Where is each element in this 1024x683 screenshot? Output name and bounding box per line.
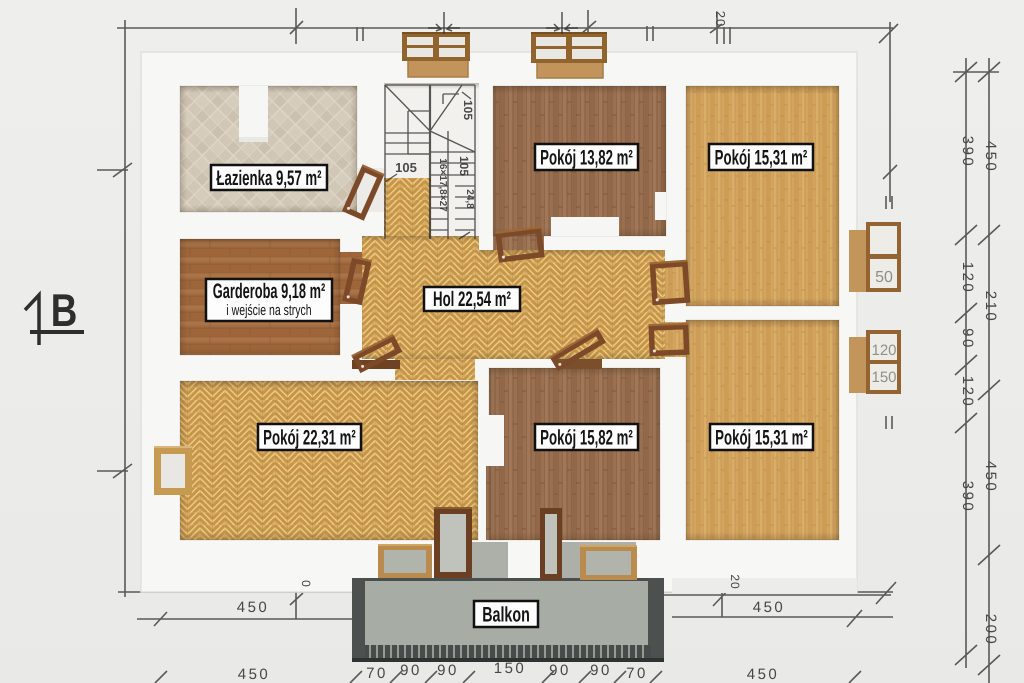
svg-text:Pokój 13,82 m²: Pokój 13,82 m²	[540, 147, 633, 170]
svg-text:Pokój 22,31 m²: Pokój 22,31 m²	[263, 427, 356, 450]
svg-text:105: 105	[395, 160, 417, 175]
svg-text:16×17,8×27: 16×17,8×27	[437, 158, 448, 212]
svg-text:0: 0	[299, 580, 313, 588]
svg-text:i wejście na strych: i wejście na strych	[226, 302, 311, 319]
svg-text:90: 90	[400, 662, 422, 679]
svg-text:Hol 22,54 m²: Hol 22,54 m²	[433, 288, 511, 311]
svg-text:Garderoba 9,18 m²: Garderoba 9,18 m²	[213, 280, 325, 303]
svg-text:Pokój 15,31 m²: Pokój 15,31 m²	[715, 147, 808, 170]
svg-text:90: 90	[437, 662, 459, 679]
svg-text:120: 120	[959, 376, 976, 409]
svg-text:450: 450	[238, 666, 271, 683]
svg-text:210: 210	[982, 291, 999, 324]
svg-text:120: 120	[871, 342, 896, 359]
svg-text:Pokój 15,82 m²: Pokój 15,82 m²	[540, 427, 633, 450]
svg-text:Balkon: Balkon	[482, 604, 530, 627]
svg-text:24,8: 24,8	[464, 189, 475, 209]
svg-text:150: 150	[494, 660, 527, 677]
svg-text:90: 90	[959, 328, 976, 350]
svg-text:450: 450	[237, 599, 270, 616]
svg-text:B: B	[51, 284, 78, 336]
svg-text:105: 105	[457, 156, 471, 176]
svg-text:450: 450	[982, 141, 999, 174]
svg-text:70: 70	[626, 665, 648, 682]
svg-text:390: 390	[959, 481, 976, 514]
svg-text:150: 150	[871, 369, 896, 386]
svg-text:105: 105	[461, 100, 475, 120]
svg-text:90: 90	[590, 662, 612, 679]
svg-text:Łazienka 9,57 m²: Łazienka 9,57 m²	[216, 167, 321, 190]
svg-text:50: 50	[875, 269, 893, 286]
svg-text:20: 20	[728, 574, 742, 589]
svg-text:90: 90	[549, 662, 571, 679]
svg-text:450: 450	[747, 666, 780, 683]
svg-text:20: 20	[713, 11, 728, 27]
svg-text:Pokój 15,31 m²: Pokój 15,31 m²	[715, 427, 808, 450]
svg-text:450: 450	[753, 599, 786, 616]
svg-text:200: 200	[982, 614, 999, 647]
svg-text:390: 390	[959, 136, 976, 169]
svg-text:450: 450	[982, 461, 999, 494]
svg-text:70: 70	[366, 665, 388, 682]
svg-text:120: 120	[959, 262, 976, 295]
